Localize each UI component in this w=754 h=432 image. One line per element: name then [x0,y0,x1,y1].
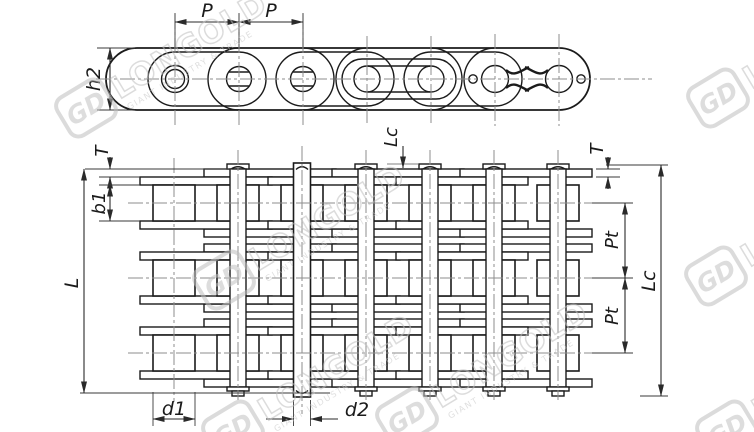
inner-plate-bar [140,327,272,335]
outer-plate-bar [204,319,336,327]
label-inner-width: b1 [89,192,110,215]
outer-plate-bar [204,169,336,177]
watermark-brand-text: LONGOLD [735,153,754,274]
inner-plate-bar [396,296,528,304]
label-transverse-pitch-lower: Pt [602,306,623,325]
outer-plate-bar [460,229,592,237]
inner-plate-bar [396,177,528,185]
watermark: GDLONGOLDGIANT INDUSTRY & TRADE [684,0,754,135]
label-plate-thickness-right: T [587,142,608,155]
drawing-canvas: P P h2 Lc T b1 L T Pt Pt Lc d1 d2 GDLONG… [0,0,754,432]
outer-plate-bar [332,244,464,252]
label-overall-length: L [61,278,83,289]
inner-plate-bar [140,177,272,185]
label-roller-diameter: d1 [162,398,186,420]
inner-plate-bar [140,371,272,379]
label-plate-thickness-left: T [92,144,113,157]
label-transverse-pitch-upper: Pt [602,230,623,249]
watermark: GDLONGOLDGIANT INDUSTRY & TRADE [682,150,754,313]
inner-plate-bar [396,221,528,229]
inner-plate-bar [268,296,400,304]
chain-technical-drawing: P P h2 Lc T b1 L T Pt Pt Lc d1 d2 GDLONG… [0,0,754,432]
inner-plate-bar [140,221,272,229]
watermark: GDLONGOLDGIANT INDUSTRY & TRADE [693,304,754,432]
label-pin-length-cotter: Lc [638,270,660,292]
label-pin-diameter: d2 [345,399,369,421]
outer-plate-bar [460,244,592,252]
inner-plate-bar [396,252,528,260]
label-pin-length-leader: Lc [381,127,402,147]
outer-plate-bar [460,169,592,177]
